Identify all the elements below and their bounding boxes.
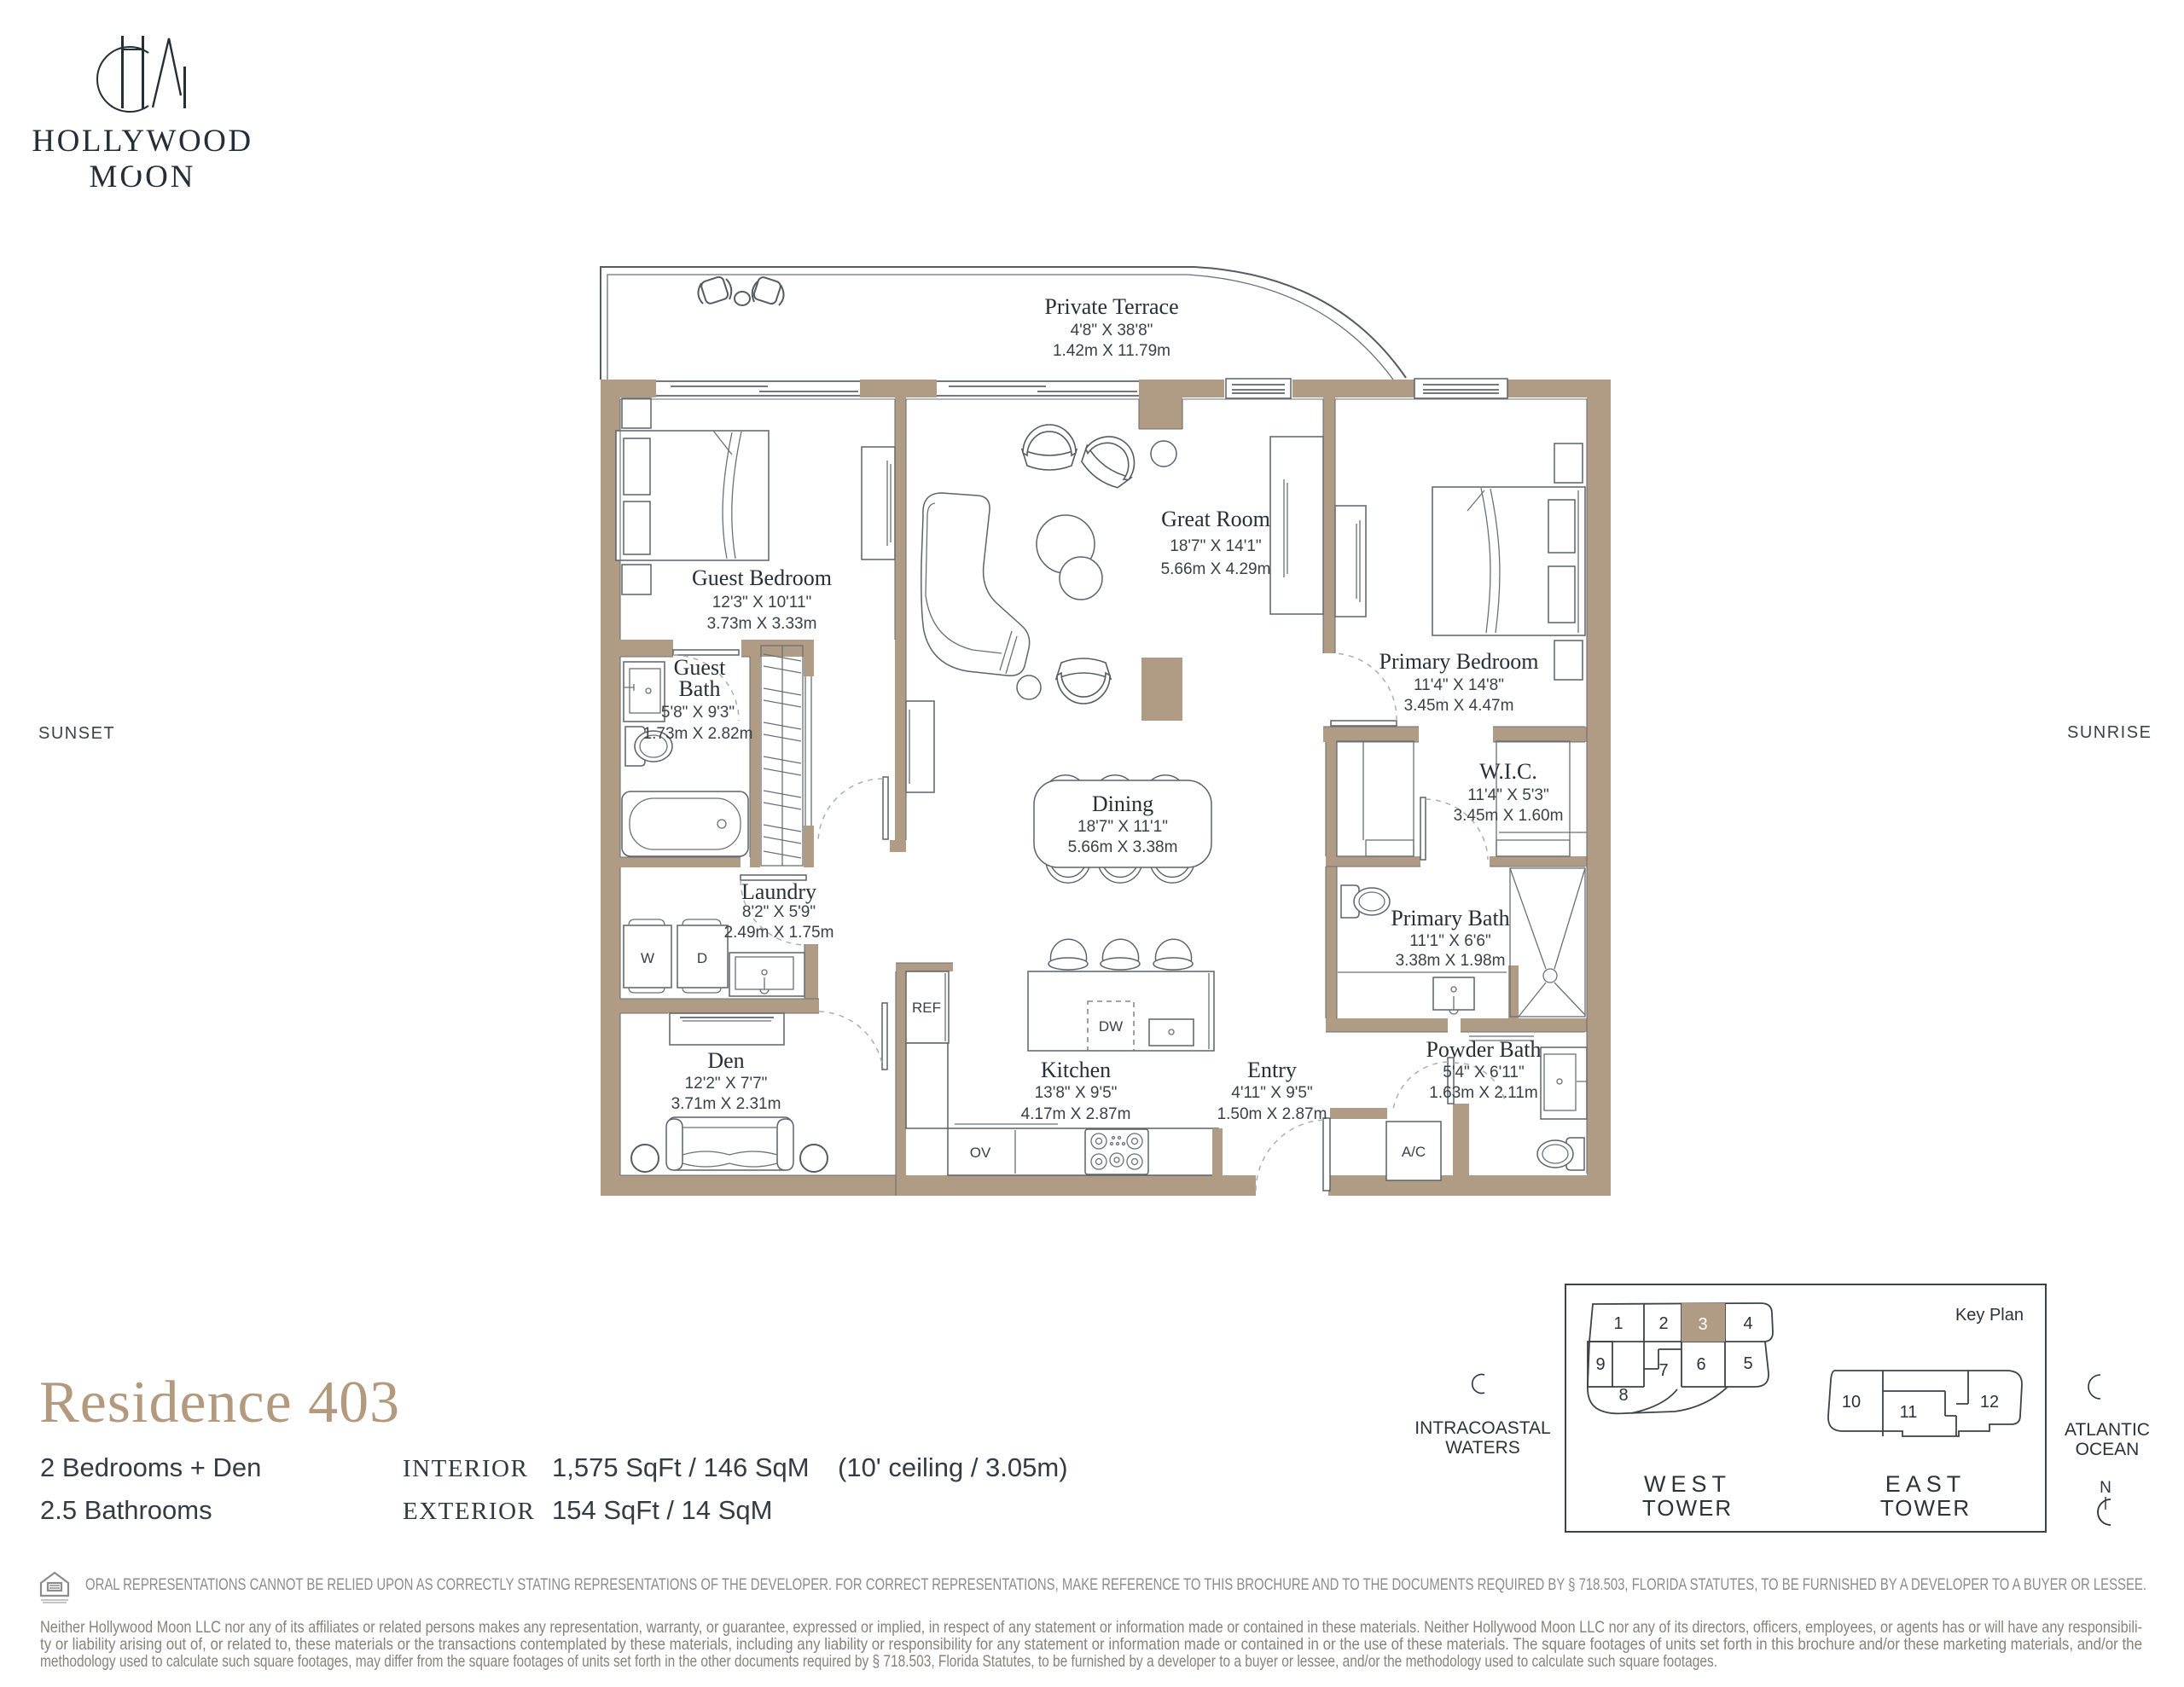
- svg-text:ORAL REPRESENTATIONS CANNOT BE: ORAL REPRESENTATIONS CANNOT BE RELIED UP…: [85, 1575, 2146, 1594]
- svg-text:3.45m X 1.60m: 3.45m X 1.60m: [1454, 807, 1564, 825]
- svg-text:W.I.C.: W.I.C.: [1479, 759, 1537, 784]
- svg-text:1.63m X 2.11m: 1.63m X 2.11m: [1429, 1084, 1537, 1102]
- svg-text:3.73m X 3.33m: 3.73m X 3.33m: [707, 615, 817, 633]
- svg-text:Dining: Dining: [1092, 791, 1153, 816]
- svg-text:1.42m X 11.79m: 1.42m X 11.79m: [1053, 342, 1170, 360]
- svg-text:OCEAN: OCEAN: [2076, 1440, 2140, 1459]
- svg-text:Primary Bedroom: Primary Bedroom: [1379, 649, 1538, 674]
- svg-text:9: 9: [1595, 1355, 1605, 1374]
- svg-text:11'4" X 5'3": 11'4" X 5'3": [1467, 786, 1548, 804]
- svg-text:WATERS: WATERS: [1445, 1438, 1520, 1458]
- svg-text:EAST: EAST: [1885, 1471, 1966, 1497]
- svg-text:8'2" X 5'9": 8'2" X 5'9": [742, 903, 816, 921]
- svg-text:INTRACOASTAL: INTRACOASTAL: [1414, 1418, 1550, 1438]
- svg-text:7: 7: [1658, 1361, 1668, 1380]
- svg-text:13'8" X 9'5": 13'8" X 9'5": [1035, 1084, 1118, 1102]
- svg-text:6: 6: [1696, 1355, 1705, 1374]
- svg-text:Great Room: Great Room: [1161, 507, 1270, 531]
- svg-text:154 SqFt / 14 SqM: 154 SqFt / 14 SqM: [552, 1495, 772, 1525]
- svg-text:3: 3: [1698, 1315, 1707, 1334]
- svg-text:INTERIOR: INTERIOR: [403, 1455, 528, 1482]
- svg-text:D: D: [697, 950, 707, 966]
- svg-text:4'8" X 38'8": 4'8" X 38'8": [1071, 322, 1153, 339]
- svg-text:WEST: WEST: [1644, 1471, 1731, 1497]
- svg-text:1.50m X 2.87m: 1.50m X 2.87m: [1217, 1105, 1327, 1123]
- svg-text:2 Bedrooms + Den: 2 Bedrooms + Den: [40, 1452, 261, 1482]
- svg-text:5.66m X 3.38m: 5.66m X 3.38m: [1068, 838, 1178, 856]
- svg-text:2.5 Bathrooms: 2.5 Bathrooms: [40, 1495, 212, 1525]
- svg-text:12: 12: [1980, 1393, 1999, 1412]
- svg-text:HOLLYWOOD: HOLLYWOOD: [32, 124, 253, 159]
- svg-text:12'3" X 10'11": 12'3" X 10'11": [712, 594, 812, 612]
- svg-text:EXTERIOR: EXTERIOR: [403, 1498, 535, 1525]
- svg-text:Bath: Bath: [678, 676, 720, 701]
- svg-text:5'4" X 6'11": 5'4" X 6'11": [1443, 1064, 1524, 1081]
- svg-text:Neither Hollywood Moon LLC nor: Neither Hollywood Moon LLC nor any of it…: [40, 1618, 2142, 1637]
- svg-text:11'4" X 14'8": 11'4" X 14'8": [1414, 676, 1504, 694]
- svg-text:TOWER: TOWER: [1642, 1495, 1733, 1521]
- svg-text:18'7" X 14'1": 18'7" X 14'1": [1170, 537, 1261, 555]
- svg-text:4.17m X 2.87m: 4.17m X 2.87m: [1021, 1105, 1131, 1123]
- svg-text:DW: DW: [1099, 1018, 1123, 1035]
- svg-text:5: 5: [1743, 1354, 1752, 1373]
- svg-text:3.45m X 4.47m: 3.45m X 4.47m: [1404, 697, 1514, 715]
- svg-text:ATLANTIC: ATLANTIC: [2065, 1420, 2150, 1440]
- svg-text:2.49m X 1.75m: 2.49m X 1.75m: [724, 924, 834, 942]
- svg-text:REF: REF: [912, 1000, 941, 1016]
- svg-text:3.71m X 2.31m: 3.71m X 2.31m: [671, 1095, 781, 1113]
- svg-text:Laundry: Laundry: [741, 879, 816, 904]
- svg-text:Powder Bath: Powder Bath: [1426, 1037, 1541, 1062]
- svg-text:12'2" X 7'7": 12'2" X 7'7": [685, 1075, 768, 1093]
- svg-text:Primary Bath: Primary Bath: [1391, 906, 1509, 930]
- svg-text:W: W: [641, 950, 654, 966]
- svg-text:ty or liability arising out of: ty or liability arising out of, or relat…: [40, 1635, 2142, 1654]
- svg-text:methodology used to calculate: methodology used to calculate such squar…: [40, 1652, 1717, 1671]
- svg-text:Den: Den: [707, 1048, 744, 1073]
- svg-text:(10' ceiling / 3.05m): (10' ceiling / 3.05m): [838, 1452, 1068, 1482]
- svg-text:18'7" X 11'1": 18'7" X 11'1": [1077, 818, 1168, 836]
- svg-text:1,575 SqFt / 146 SqM: 1,575 SqFt / 146 SqM: [552, 1452, 810, 1482]
- svg-text:Kitchen: Kitchen: [1041, 1058, 1111, 1082]
- svg-text:TOWER: TOWER: [1880, 1495, 1971, 1521]
- svg-text:SUNSET: SUNSET: [38, 724, 115, 743]
- svg-text:4'11" X 9'5": 4'11" X 9'5": [1231, 1084, 1312, 1102]
- svg-text:OV: OV: [970, 1145, 991, 1161]
- svg-text:10: 10: [1842, 1393, 1861, 1412]
- svg-text:3.38m X 1.98m: 3.38m X 1.98m: [1396, 952, 1506, 970]
- svg-text:SUNRISE: SUNRISE: [2067, 723, 2152, 742]
- svg-text:1.73m X 2.82m: 1.73m X 2.82m: [643, 725, 753, 743]
- svg-text:5'8" X 9'3": 5'8" X 9'3": [661, 704, 735, 722]
- svg-text:8: 8: [1618, 1386, 1628, 1405]
- svg-text:N: N: [2100, 1479, 2111, 1497]
- svg-text:Residence 403: Residence 403: [39, 1370, 400, 1435]
- svg-text:Entry: Entry: [1247, 1058, 1297, 1082]
- svg-text:5.66m X 4.29m: 5.66m X 4.29m: [1161, 560, 1271, 578]
- svg-text:2: 2: [1658, 1314, 1668, 1333]
- svg-text:4: 4: [1743, 1314, 1752, 1333]
- svg-text:Private Terrace: Private Terrace: [1044, 294, 1178, 319]
- svg-text:Key Plan: Key Plan: [1955, 1306, 2024, 1325]
- svg-text:A/C: A/C: [1402, 1144, 1426, 1160]
- svg-text:Guest Bedroom: Guest Bedroom: [692, 565, 832, 590]
- svg-text:11'1" X 6'6": 11'1" X 6'6": [1409, 932, 1490, 950]
- svg-text:11: 11: [1900, 1403, 1918, 1422]
- svg-text:1: 1: [1613, 1314, 1623, 1333]
